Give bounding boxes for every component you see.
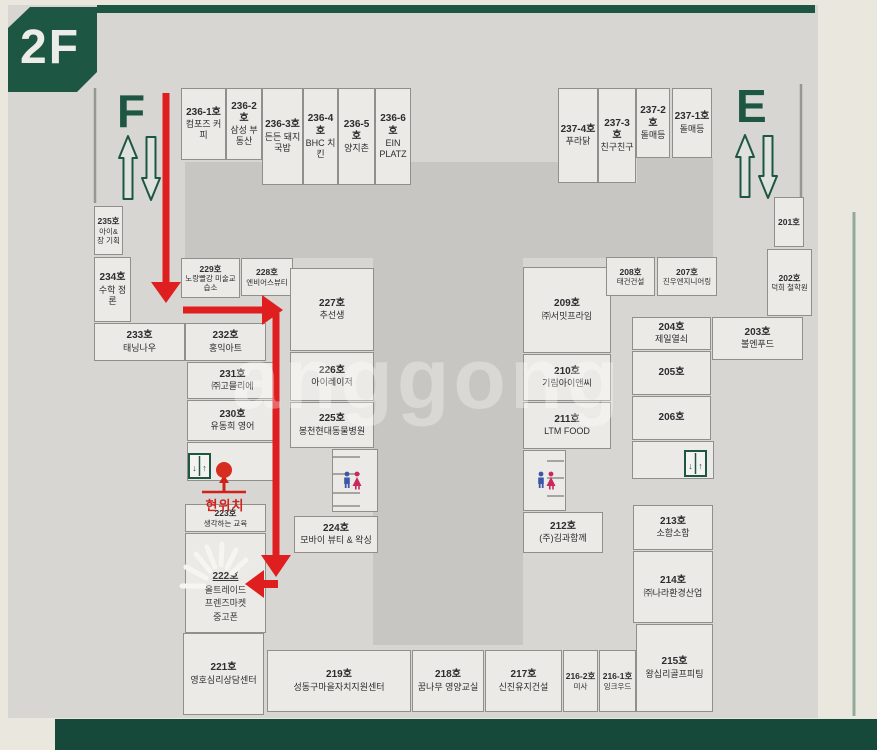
courtyard-top-right	[558, 183, 713, 258]
room-218: 218호 꿈나무 영양교실	[412, 650, 484, 712]
room-name: 영호심리상담센터	[190, 675, 256, 686]
room-number: 201호	[778, 217, 800, 227]
room-number: 222호	[213, 569, 239, 584]
room-name: 든든 돼지국밥	[264, 132, 301, 154]
room-number: 227호	[319, 298, 345, 310]
room-number: 231호	[220, 369, 246, 381]
room-number: 224호	[323, 523, 349, 535]
room-name: 봉천현대동물병원	[299, 426, 365, 437]
room-number: 202호	[778, 273, 800, 283]
room-name-line: 올트레이드	[205, 584, 246, 598]
board-top-green-strip	[97, 5, 815, 13]
room-number: 225호	[319, 413, 345, 425]
room-217: 217호 신진유지건설	[485, 650, 562, 712]
room-225: 225호 봉천현대동물병원	[290, 402, 374, 448]
room-234: 234호 수학 정론	[94, 257, 131, 322]
room-215: 215호 왕십리골프피팅	[636, 624, 713, 712]
room-202: 202호 덕희 철학원	[767, 249, 812, 316]
room-name: 꿈나무 영양교실	[418, 682, 478, 693]
room-236-2: 236-2호 삼성 부동산	[226, 88, 262, 160]
room-201: 201호	[774, 197, 804, 247]
room-216-2: 216-2호 미사	[563, 650, 598, 712]
room-number: 233호	[127, 330, 153, 342]
room-name: 기림아이앤씨	[542, 378, 592, 389]
room-231: 231호 ㈜고믈리에	[187, 362, 278, 399]
room-number: 214호	[660, 575, 686, 587]
room-name: 돌매등	[641, 130, 666, 141]
room-name: 추선생	[320, 310, 345, 321]
room-236-6: 236-6호 EIN PLATZ	[375, 88, 411, 185]
room-number: 206호	[659, 412, 685, 424]
room-236-4: 236-4호 BHC 치킨	[303, 88, 338, 185]
room-number: 236-6호	[377, 113, 409, 137]
room-232: 232호 홍익아트	[185, 323, 266, 361]
elevator-room-right	[632, 441, 714, 479]
room-235: 235호 아이&장 기획	[94, 206, 123, 255]
room-number: 236-4호	[305, 113, 336, 137]
stairs-restroom-left	[332, 449, 378, 512]
room-name: 홍익아트	[209, 343, 242, 354]
room-name: 친구친구	[600, 142, 633, 153]
room-name: BHC 치킨	[305, 138, 336, 160]
wing-label-e: E	[736, 79, 767, 133]
room-number: 212호	[550, 521, 576, 533]
room-237-2: 237-2호 돌매등	[636, 88, 670, 158]
room-number: 237-2호	[638, 105, 668, 129]
room-name: LTM FOOD	[544, 426, 590, 437]
floor-label: 2F	[20, 20, 80, 75]
room-211: 211호 LTM FOOD	[523, 402, 611, 449]
room-number: 205호	[659, 367, 685, 379]
room-number: 216-1호	[603, 671, 633, 681]
room-name: 푸라닭	[566, 136, 591, 147]
room-207: 207호 진우엔지니어링	[657, 257, 717, 296]
room-name: 진우엔지니어링	[663, 277, 711, 286]
room-name: 유동희 영어	[211, 421, 255, 432]
current-location-label: 현위치	[196, 495, 254, 514]
room-219: 219호 성동구마을자치지원센터	[267, 650, 411, 712]
room-name: 아이&장 기획	[96, 227, 121, 245]
room-number: 216-2호	[566, 671, 596, 681]
room-name: 미사	[574, 682, 588, 691]
room-number: 236-1호	[186, 107, 221, 119]
room-213: 213호 소함소함	[633, 505, 713, 550]
room-number: 237-3호	[600, 118, 634, 142]
room-208: 208호 태건건설	[606, 257, 655, 296]
room-number: 237-4호	[561, 124, 596, 136]
room-name: 양지촌	[344, 143, 369, 154]
room-237-3: 237-3호 친구친구	[598, 88, 636, 183]
room-name: (주)김과함께	[539, 533, 586, 544]
room-name: 아이레이저	[311, 377, 352, 388]
room-name: ㈜고믈리에	[211, 381, 253, 392]
room-name: 엔비어스뷰티	[246, 278, 287, 287]
room-236-3: 236-3호 든든 돼지국밥	[262, 88, 303, 185]
room-name: 태건건설	[617, 277, 645, 286]
room-name: 모바이 뷰티 & 왁싱	[300, 535, 371, 546]
room-number: 208호	[619, 267, 641, 277]
courtyard-top-right-notch	[637, 158, 713, 184]
room-228: 228호 엔비어스뷰티	[241, 258, 293, 296]
room-number: 236-3호	[265, 119, 300, 131]
room-number: 230호	[220, 409, 246, 421]
floor-map-photo: 2F F E 236-1호 컴포즈 커피 236-2호 삼성 부동산 236-3…	[0, 0, 877, 750]
room-name: EIN PLATZ	[377, 138, 409, 160]
room-name: 덕희 철학원	[771, 283, 808, 292]
room-name: 왕십리골프피팅	[646, 669, 704, 680]
room-209: 209호 ㈜서밋프라임	[523, 267, 611, 353]
room-number: 234호	[100, 272, 126, 284]
room-224: 224호 모바이 뷰티 & 왁싱	[294, 516, 378, 553]
room-number: 221호	[211, 662, 237, 674]
room-number: 213호	[660, 516, 686, 528]
room-204: 204호 제일열쇠	[632, 317, 711, 350]
room-236-1: 236-1호 컴포즈 커피	[181, 88, 226, 160]
room-236-5: 236-5호 양지촌	[338, 88, 375, 185]
room-name: ㈜서밋프라임	[542, 311, 592, 322]
courtyard-center	[373, 258, 523, 645]
room-number: 204호	[659, 322, 685, 334]
room-number: 210호	[554, 366, 580, 378]
room-205: 205호	[632, 351, 711, 395]
room-name: 삼성 부동산	[228, 125, 260, 147]
room-number: 217호	[511, 669, 537, 681]
room-name: 신진유지건설	[499, 682, 549, 693]
room-name: 볼엔푸드	[741, 339, 774, 350]
room-number: 232호	[213, 330, 239, 342]
room-name: 소함소함	[656, 528, 689, 539]
room-name: 잉크우드	[604, 682, 632, 691]
room-number: 237-1호	[675, 111, 710, 123]
room-number: 215호	[662, 656, 688, 668]
current-location-dot	[216, 462, 232, 478]
room-number: 219호	[326, 669, 352, 681]
room-216-1: 216-1호 잉크우드	[599, 650, 636, 712]
room-206: 206호	[632, 396, 711, 440]
room-number: 209호	[554, 298, 580, 310]
room-number: 228호	[256, 267, 278, 277]
room-name: 노랑빨강 미술교습소	[183, 274, 238, 292]
room-number: 226호	[319, 365, 345, 377]
room-237-4: 237-4호 푸라닭	[558, 88, 598, 183]
room-222-destination: 222호 올트레이드 프렌즈마켓 중고폰	[185, 533, 266, 633]
room-214: 214호 ㈜나라환경산업	[633, 551, 713, 623]
room-name: 수학 정론	[96, 285, 129, 307]
room-number: 211호	[554, 414, 579, 426]
room-name-line: 프렌즈마켓	[205, 597, 246, 611]
room-name: 컴포즈 커피	[183, 119, 224, 141]
room-name-line: 중고폰	[213, 611, 238, 625]
elevator-room-left	[187, 442, 278, 481]
room-230: 230호 유동희 영어	[187, 400, 278, 441]
room-number: 229호	[199, 264, 221, 274]
room-number: 235호	[97, 216, 119, 226]
room-number: 236-5호	[340, 119, 373, 143]
room-number: 207호	[676, 267, 698, 277]
room-226: 226호 아이레이저	[290, 352, 374, 401]
room-name: 성동구마을자치지원센터	[293, 682, 384, 693]
room-212: 212호 (주)김과함께	[523, 512, 603, 553]
room-name: 제일열쇠	[655, 334, 688, 345]
room-name: 생각하는 교육	[204, 519, 247, 528]
room-name: 돌매등	[680, 124, 705, 135]
room-name: ㈜나라환경산업	[644, 588, 703, 599]
room-number: 236-2호	[228, 101, 260, 125]
room-237-1: 237-1호 돌매등	[672, 88, 712, 158]
room-203: 203호 볼엔푸드	[712, 317, 803, 360]
room-name: 태닝나우	[123, 343, 156, 354]
room-210: 210호 기림아이앤씨	[523, 354, 611, 401]
stairs-restroom-right	[523, 450, 566, 511]
room-233: 233호 태닝나우	[94, 323, 185, 361]
room-number: 218호	[435, 669, 461, 681]
room-229: 229호 노랑빨강 미술교습소	[181, 258, 240, 298]
room-227: 227호 추선생	[290, 268, 374, 351]
room-221: 221호 영호심리상담센터	[183, 633, 264, 715]
wing-label-f: F	[117, 84, 145, 138]
room-number: 203호	[745, 327, 771, 339]
board-bottom-green-bar	[55, 719, 877, 750]
